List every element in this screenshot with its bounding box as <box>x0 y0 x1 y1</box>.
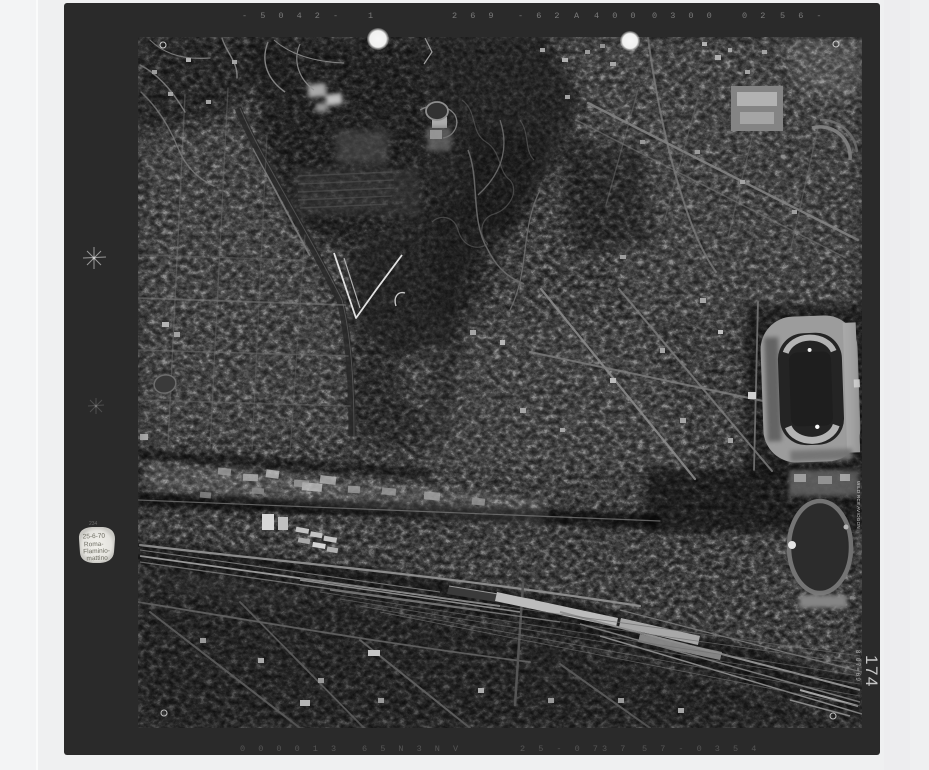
svg-text:- 6 2: - 6 2 <box>518 11 564 21</box>
svg-text:WILD RC8 AVIOGON: WILD RC8 AVIOGON <box>856 481 861 529</box>
svg-text:A: A <box>574 11 583 21</box>
svg-text:2 6 9: 2 6 9 <box>452 11 498 21</box>
svg-text:5 6 -: 5 6 - <box>780 11 826 21</box>
svg-text:1: 1 <box>368 11 377 21</box>
svg-text:8 07=69: 8 07=69 <box>854 650 860 682</box>
svg-text:0 3 0 0: 0 3 0 0 <box>652 11 716 21</box>
svg-text:0 2: 0 2 <box>742 11 769 21</box>
svg-text:25-6-70: 25-6-70 <box>83 533 106 541</box>
svg-text:4 0 0: 4 0 0 <box>594 11 640 21</box>
svg-text:234: 234 <box>89 521 98 527</box>
svg-text:6 5 N 3 N V: 6 5 N 3 N V <box>362 744 462 754</box>
svg-text:5 7 - 0 3 5 4: 5 7 - 0 3 5 4 <box>642 744 760 754</box>
svg-text:2 5 - 0 7: 2 5 - 0 7 <box>520 744 602 754</box>
svg-text:mattino: mattino <box>86 555 108 563</box>
svg-text:174: 174 <box>862 655 881 688</box>
svg-text:0 0 0 0 1 3: 0 0 0 0 1 3 <box>240 744 340 754</box>
svg-text:- 5 0 4 2 -: - 5 0 4 2 - <box>242 11 342 21</box>
svg-text:3 7: 3 7 <box>602 744 629 754</box>
